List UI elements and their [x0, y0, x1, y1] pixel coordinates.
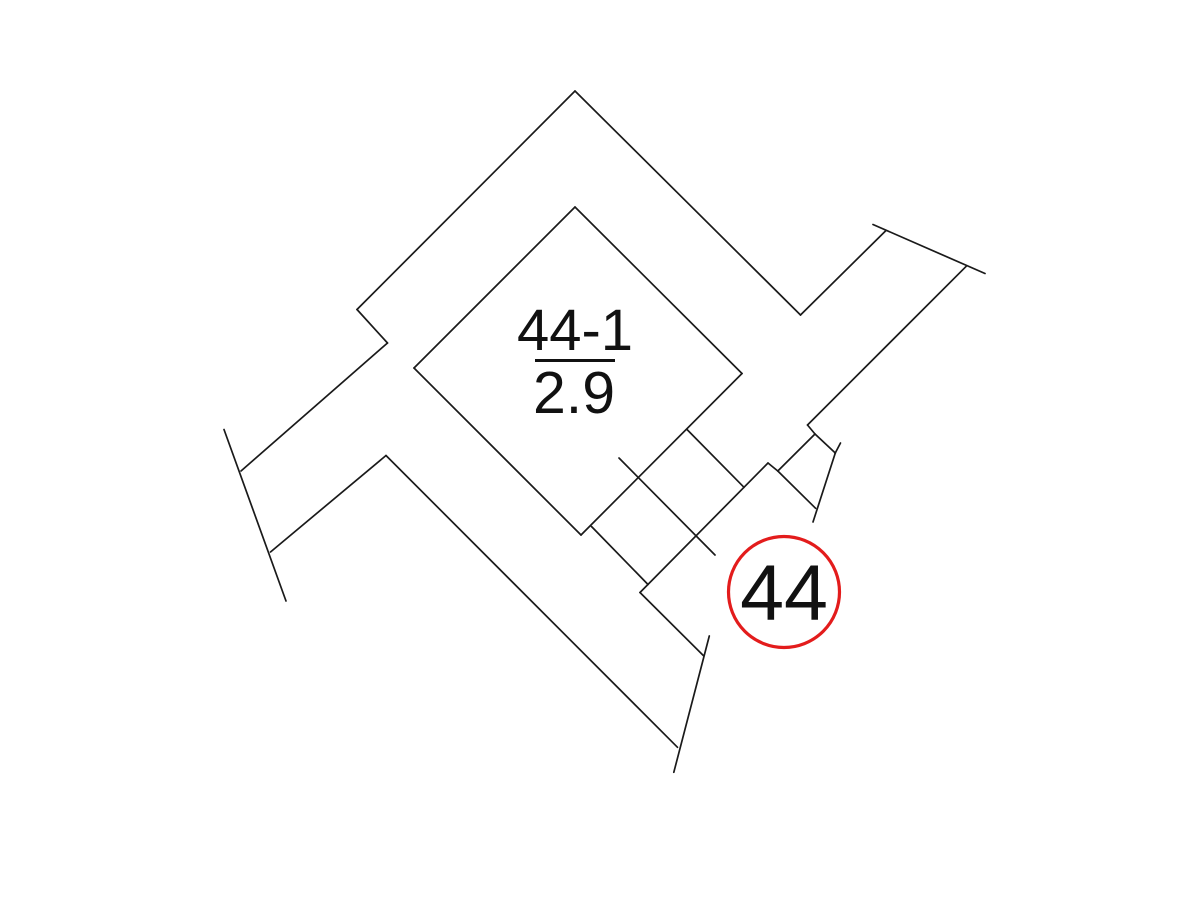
- svg-text:2.9: 2.9: [533, 360, 615, 426]
- svg-text:44: 44: [740, 548, 828, 637]
- svg-text:44-1: 44-1: [517, 298, 633, 363]
